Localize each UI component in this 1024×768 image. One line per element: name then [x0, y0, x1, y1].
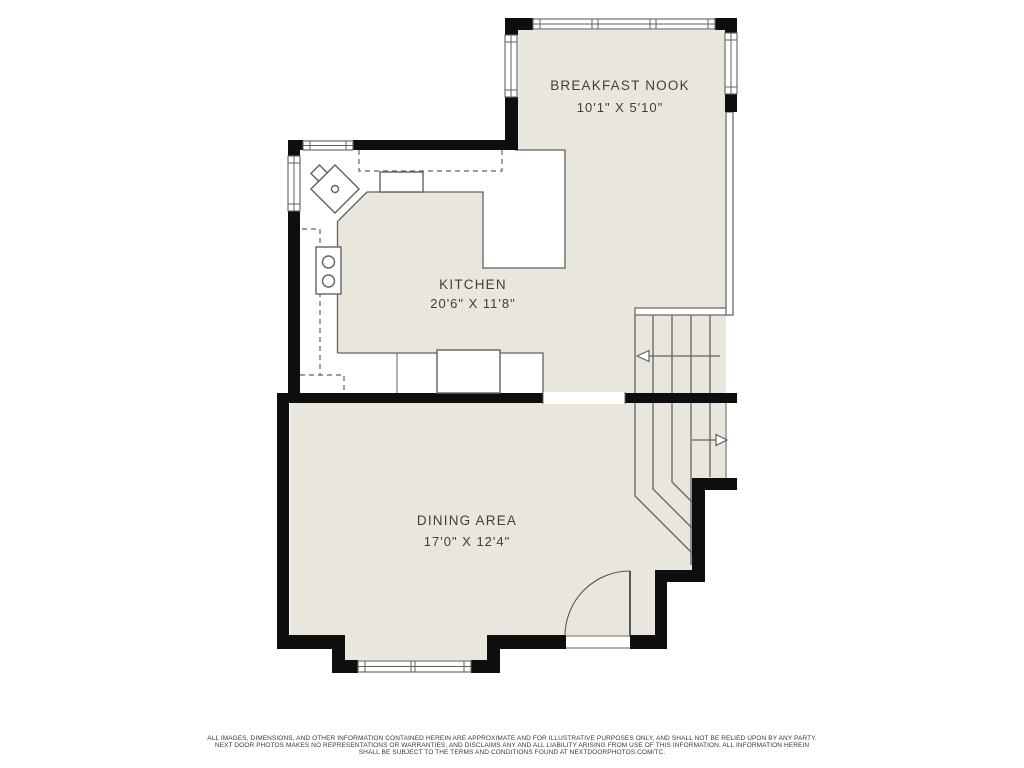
- dining-left-wall: [277, 393, 289, 649]
- floor-plan: BREAKFAST NOOK 10'1" X 5'10" KITCHEN 20'…: [0, 0, 1024, 768]
- nook-right-wall-a: [725, 18, 737, 33]
- floor-plan-page: BREAKFAST NOOK 10'1" X 5'10" KITCHEN 20'…: [0, 0, 1024, 768]
- kitchen-top-window: [303, 141, 353, 150]
- kitchen-dining-opening: [543, 392, 625, 404]
- bay-window: [358, 661, 471, 672]
- divider-wall-right: [625, 393, 737, 403]
- range-stove: [316, 247, 341, 294]
- disclaimer-line-3: SHALL BE SUBJECT TO THE TERMS AND CONDIT…: [359, 749, 666, 756]
- nook-top-window: [533, 19, 715, 29]
- nook-left-window: [505, 35, 517, 97]
- kitchen-label: KITCHEN: [439, 277, 507, 292]
- kitchen-left-window: [288, 156, 300, 211]
- kitchen-left-wall-b: [288, 211, 300, 395]
- nook-right-window: [725, 33, 737, 94]
- breakfast-nook-label: BREAKFAST NOOK: [550, 78, 690, 93]
- nook-right-wall-b: [725, 94, 737, 112]
- kitchen-left-wall-a: [288, 140, 300, 156]
- disclaimer-line-1: ALL IMAGES, DIMENSIONS, AND OTHER INFORM…: [207, 735, 816, 742]
- bay-step-right: [487, 635, 500, 673]
- counter-appliance-box: [380, 172, 423, 192]
- dishwasher: [437, 350, 500, 393]
- dining-area-dims: 17'0" X 12'4": [424, 534, 510, 549]
- kitchen-top-wall-b: [353, 140, 515, 150]
- disclaimer: ALL IMAGES, DIMENSIONS, AND OTHER INFORM…: [207, 735, 816, 756]
- stair-head-wall: [635, 308, 733, 315]
- bottom-counter: [300, 353, 543, 393]
- breakfast-nook-dims: 10'1" X 5'10": [577, 100, 663, 115]
- dining-area-label: DINING AREA: [417, 513, 517, 528]
- disclaimer-line-2: NEXT DOOR PHOTOS MAKES NO REPRESENTATION…: [215, 742, 809, 749]
- divider-wall-left: [277, 393, 543, 403]
- bay-bottom-left: [332, 660, 358, 673]
- door-threshold: [566, 636, 630, 648]
- bottom-wall-left: [277, 635, 333, 649]
- bottom-wall-mid: [500, 635, 566, 649]
- kitchen-dims: 20'6" X 11'8": [430, 296, 516, 311]
- right-thin-wall: [726, 112, 733, 315]
- nook-left-wall-a: [505, 18, 518, 35]
